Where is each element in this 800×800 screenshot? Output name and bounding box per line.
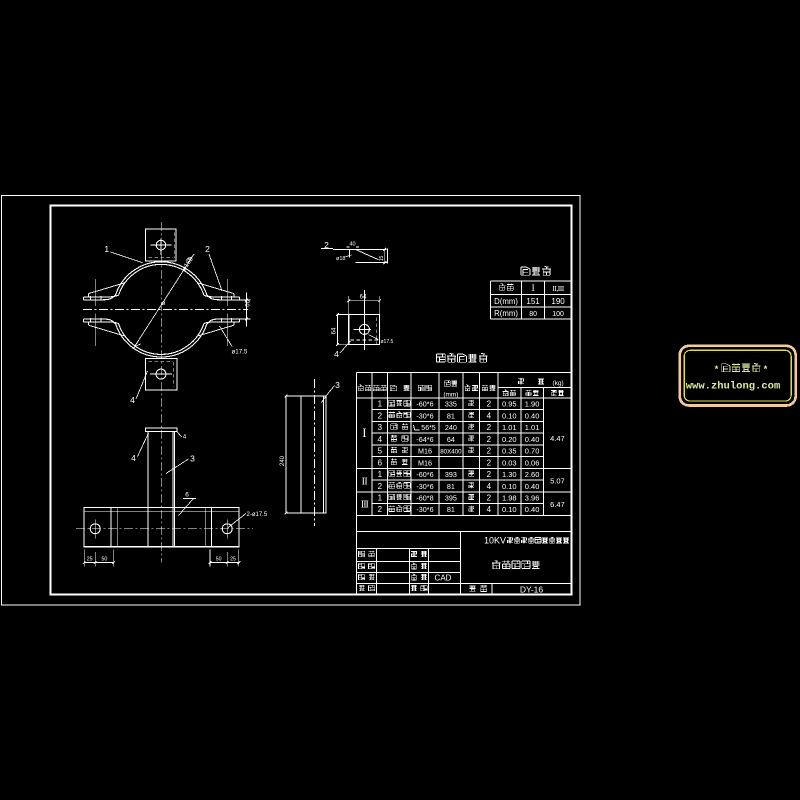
svg-text:240: 240 [280,455,286,466]
svg-text:0.03: 0.03 [502,458,517,467]
svg-text:2: 2 [378,411,383,420]
svg-text:0.10: 0.10 [502,482,517,491]
svg-text:81: 81 [447,505,455,514]
svg-text:1: 1 [378,494,383,503]
svg-text:2: 2 [205,244,210,254]
svg-text:0.40: 0.40 [525,411,540,420]
svg-text:0.40: 0.40 [525,482,540,491]
svg-text:(kg): (kg) [553,380,564,387]
svg-text:0.06: 0.06 [525,458,540,467]
svg-text:0.35: 0.35 [502,447,517,456]
svg-text:ø: ø [162,300,166,307]
svg-text:D(mm): D(mm) [494,297,518,306]
svg-text:*: * [715,364,719,375]
svg-text:0.40: 0.40 [525,505,540,514]
svg-text:2: 2 [487,423,492,432]
svg-text:2: 2 [378,482,383,491]
svg-text:II: II [362,477,368,488]
svg-text:3: 3 [335,380,340,390]
svg-text:0.20: 0.20 [502,435,517,444]
svg-text:I: I [362,425,366,440]
svg-text:2-ø17.5: 2-ø17.5 [247,512,268,518]
svg-text:6: 6 [185,492,189,499]
svg-text:80X400: 80X400 [440,449,462,456]
svg-text:335: 335 [445,400,457,409]
svg-text:100: 100 [552,311,564,318]
svg-text:2: 2 [487,400,492,409]
svg-text:2: 2 [487,447,492,456]
svg-text:M16: M16 [418,447,432,456]
svg-text:6: 6 [378,458,383,467]
svg-text:2: 2 [378,505,383,514]
svg-text:4: 4 [487,505,492,514]
svg-text:4: 4 [378,435,383,444]
svg-text:(mm): (mm) [443,392,458,399]
svg-text:190: 190 [551,297,565,306]
svg-text:0.70: 0.70 [525,447,540,456]
svg-text:4: 4 [487,482,492,491]
svg-text:2: 2 [487,458,492,467]
svg-text:25: 25 [230,557,236,563]
svg-text:2: 2 [487,435,492,444]
svg-text:151: 151 [526,297,540,306]
svg-text:15: 15 [379,256,385,262]
svg-text:4.47: 4.47 [550,434,565,443]
svg-text:80: 80 [529,311,537,318]
svg-text:81: 81 [447,411,455,420]
svg-text:4: 4 [487,411,492,420]
svg-text:ø17.5: ø17.5 [232,349,248,356]
svg-text:64: 64 [360,295,367,301]
svg-text:2: 2 [487,494,492,503]
svg-text:1: 1 [378,400,383,409]
svg-text:0.95: 0.95 [502,400,517,409]
svg-text:81: 81 [447,482,455,491]
svg-text:5.07: 5.07 [550,477,565,486]
svg-text:-30*6: -30*6 [416,411,433,420]
svg-text:4: 4 [130,395,135,405]
svg-text:*: * [764,364,768,375]
svg-text:II,III: II,III [552,284,564,293]
svg-text:240: 240 [445,423,457,432]
svg-text:393: 393 [445,470,457,479]
svg-text:2.60: 2.60 [525,470,540,479]
svg-text:3: 3 [378,423,383,432]
svg-text:R(mm): R(mm) [494,309,518,318]
svg-text:50: 50 [102,557,108,563]
svg-text:I: I [532,283,535,293]
svg-text:M16: M16 [418,458,432,467]
svg-text:www.zhulong.com: www.zhulong.com [686,381,781,393]
svg-text:ø18: ø18 [336,256,345,262]
svg-text:-64*6: -64*6 [416,435,433,444]
svg-text:1.01: 1.01 [502,423,517,432]
svg-text:-30*6: -30*6 [416,482,433,491]
svg-text:ø17.5: ø17.5 [381,339,394,345]
svg-text:1: 1 [104,244,109,254]
svg-text:4: 4 [334,349,339,359]
svg-text:1.01: 1.01 [525,423,540,432]
svg-text:-30*6: -30*6 [416,505,433,514]
svg-text:40: 40 [349,242,355,248]
svg-text:-60*8: -60*8 [416,494,433,503]
svg-text:0.40: 0.40 [525,435,540,444]
svg-text:10KV: 10KV [484,536,506,546]
svg-text:1: 1 [378,470,383,479]
svg-text:-60*6: -60*6 [416,400,433,409]
svg-text:3.96: 3.96 [525,494,540,503]
svg-text:25: 25 [87,557,93,563]
svg-text:4: 4 [131,453,136,463]
svg-text:395: 395 [445,494,457,503]
svg-text:6.47: 6.47 [550,500,565,509]
svg-text:1.98: 1.98 [502,494,517,503]
svg-text:2: 2 [487,470,492,479]
svg-text:DY-16: DY-16 [520,585,544,595]
svg-text:III: III [361,500,369,511]
svg-text:20: 20 [243,300,249,307]
svg-text:64: 64 [447,435,455,444]
svg-text:3: 3 [190,454,195,464]
svg-text:50: 50 [216,557,222,563]
svg-text:-60*6: -60*6 [416,470,433,479]
svg-text:0.10: 0.10 [502,505,517,514]
svg-text:64: 64 [331,327,337,334]
svg-text:5: 5 [378,447,383,456]
svg-text:56*5: 56*5 [421,425,436,432]
svg-text:1.30: 1.30 [502,470,517,479]
svg-text:CAD: CAD [435,574,452,583]
svg-text:0.10: 0.10 [502,411,517,420]
svg-text:1.90: 1.90 [525,400,540,409]
